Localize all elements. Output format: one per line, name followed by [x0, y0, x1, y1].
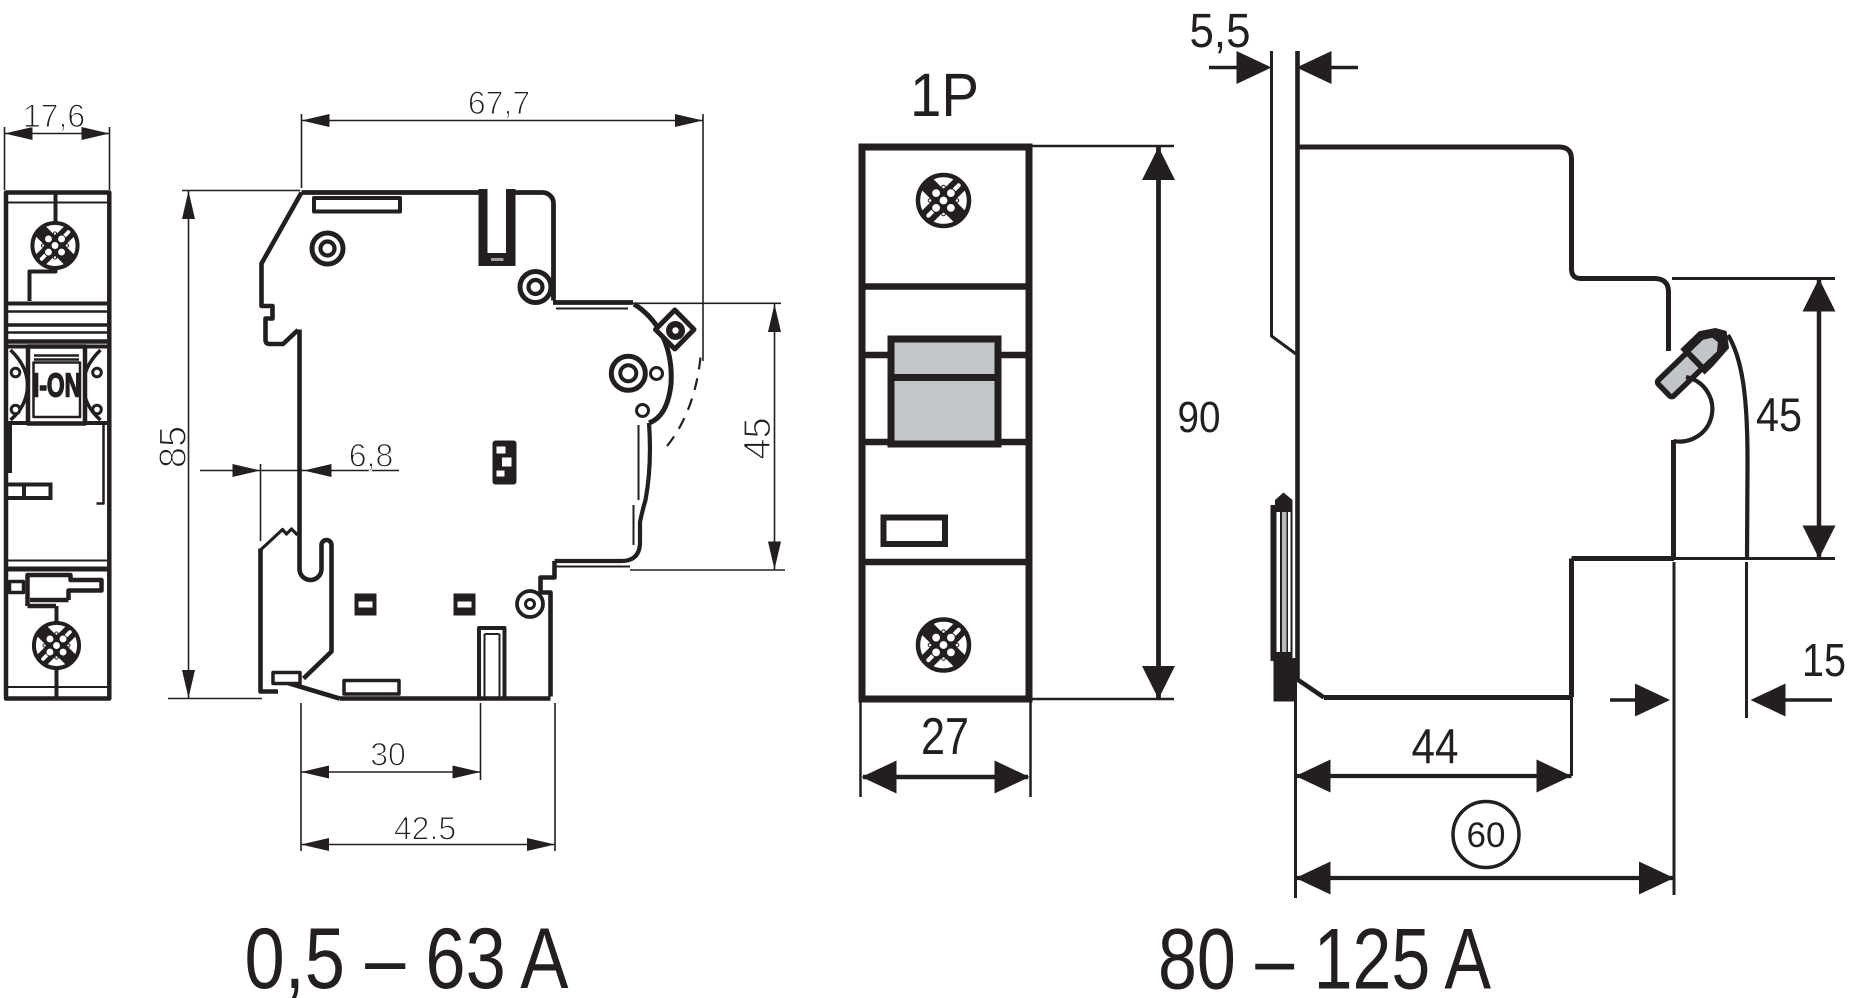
svg-text:45: 45 [1756, 388, 1802, 441]
svg-text:45: 45 [737, 417, 779, 459]
svg-text:85: 85 [153, 426, 195, 468]
svg-text:42.5: 42.5 [394, 811, 456, 847]
svg-text:1P: 1P [910, 61, 979, 129]
svg-text:6,8: 6,8 [349, 438, 393, 474]
svg-text:80 – 125 A: 80 – 125 A [1158, 912, 1492, 998]
svg-text:27: 27 [921, 708, 969, 766]
svg-text:60: 60 [1467, 816, 1506, 855]
svg-text:17,6: 17,6 [23, 98, 85, 134]
svg-text:5,5: 5,5 [1190, 5, 1251, 58]
svg-text:44: 44 [1412, 720, 1459, 774]
svg-text:67,7: 67,7 [468, 85, 530, 121]
svg-text:90: 90 [1178, 393, 1221, 442]
svg-text:15: 15 [1802, 634, 1846, 686]
svg-text:0,5 – 63 A: 0,5 – 63 A [245, 911, 570, 998]
svg-text:I-ON: I-ON [33, 367, 81, 404]
svg-text:30: 30 [370, 737, 406, 773]
